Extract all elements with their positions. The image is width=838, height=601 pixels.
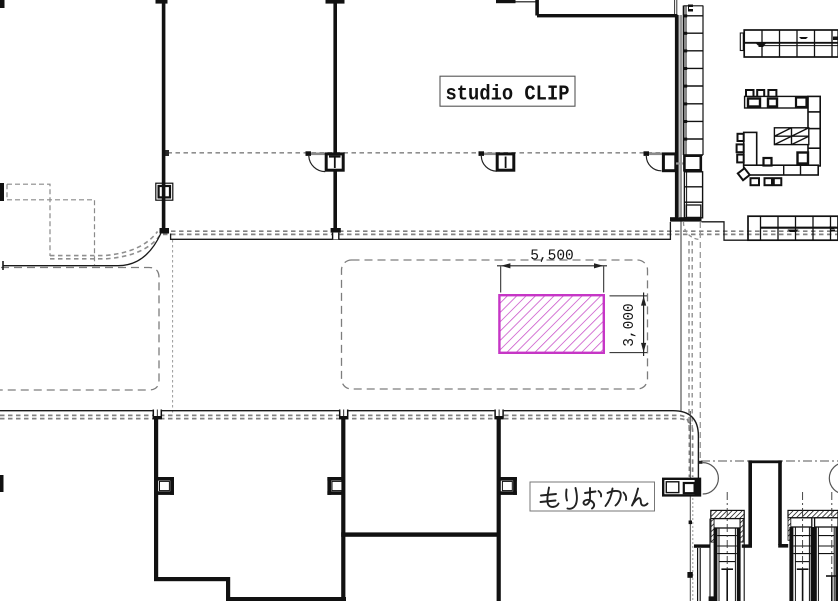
svg-text:studio CLIP: studio CLIP [446,84,570,107]
svg-text:3,000: 3,000 [622,303,638,347]
svg-text:5,500: 5,500 [530,249,574,265]
